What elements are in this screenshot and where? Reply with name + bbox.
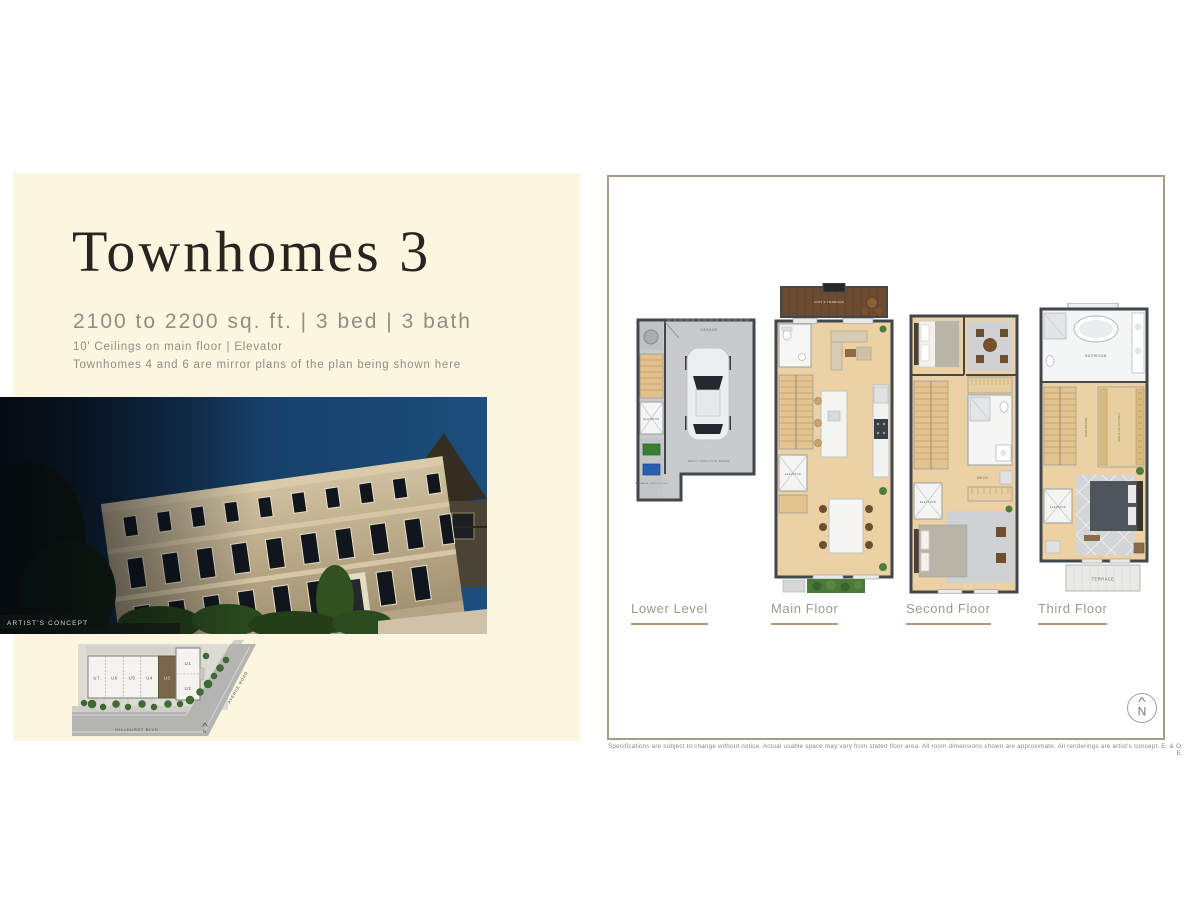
bathroom <box>968 395 1012 465</box>
elevator-label: ELEVATOR <box>1050 506 1066 509</box>
garbage-label: GARBAGE / RECYCLING <box>635 482 668 485</box>
garage-label: GARAGE <box>700 328 718 332</box>
floorplan-main-floor: UNIT 3 TERRACE <box>773 283 895 595</box>
tab-third-floor[interactable]: Third Floor <box>1038 601 1107 625</box>
site-unit-label: U4 <box>146 676 153 681</box>
elevator: ELEVATOR <box>779 455 807 491</box>
mech-label: MECH. <box>977 476 989 480</box>
unit-detail-line2: Townhomes 4 and 6 are mirror plans of th… <box>73 359 461 371</box>
svg-text:WARDROBE: WARDROBE <box>1084 417 1088 437</box>
bedroom-2 <box>914 321 959 367</box>
site-unit-label: U6 <box>111 676 118 681</box>
north-compass-icon: N <box>1123 689 1161 727</box>
shadow-overlay <box>0 397 255 634</box>
powder-room <box>779 324 811 367</box>
upper-terrace: TERRACE <box>1066 565 1140 591</box>
terrace-label: TERRACE <box>1092 577 1115 582</box>
rear-garden <box>783 579 865 593</box>
floorplan-lower-level: ELEVATOR GARBAGE / RECYCLING GARAGE MULT… <box>635 313 757 507</box>
terrace-label: UNIT 3 TERRACE <box>814 300 844 304</box>
photo-caption-badge: ARTIST'S CONCEPT <box>0 615 108 629</box>
garbage-bin <box>643 464 660 475</box>
stairs <box>640 354 663 398</box>
closet <box>779 495 807 513</box>
svg-text:N: N <box>203 729 207 734</box>
street-label-bottom: HILLHURST BLVD <box>115 727 158 732</box>
tab-main-floor[interactable]: Main Floor <box>771 601 838 625</box>
site-unit-label: U5 <box>129 676 136 681</box>
bathroom-label: BATHROOM <box>1085 354 1106 358</box>
site-unit-label: U7 <box>93 676 100 681</box>
wardrobe-hall: WARDROBE <box>1084 417 1088 437</box>
site-building: U7 U6 U5 U4 U3 U1 U2 <box>88 648 204 700</box>
floorplan-second-floor: MECH. ELEVATOR <box>908 313 1020 595</box>
bathroom: BATHROOM <box>1041 311 1147 383</box>
multi-function-label: MULTI-FUNCTION SPACE <box>688 459 730 463</box>
page-title: Townhomes 3 <box>72 218 431 285</box>
walk-in-closet-label: WALK-IN CLOSET <box>1117 412 1121 441</box>
site-unit-label: U2 <box>185 686 192 691</box>
elevator: ELEVATOR <box>640 402 663 434</box>
kitchen-counter <box>873 385 889 477</box>
site-plan: U7 U6 U5 U4 U3 U1 U2 HILLHURST BLVD AVEN… <box>72 640 262 745</box>
elevator-label: ELEVATOR <box>785 473 801 476</box>
closet-strip-2 <box>968 487 1012 501</box>
sitting-area <box>968 321 1012 371</box>
floorplan-third-floor: BATHROOM WARDROBE WALK-IN CLOSET <box>1038 303 1150 595</box>
elevator: ELEVATOR <box>1044 489 1072 523</box>
stairs <box>914 381 948 469</box>
brochure-page: Townhomes 3 2100 to 2200 sq. ft. | 3 bed… <box>0 0 1186 916</box>
compass-north-label: N <box>1138 705 1147 719</box>
elevator: ELEVATOR <box>914 483 942 519</box>
recycling-bin <box>643 444 660 455</box>
walk-in-closet: WALK-IN CLOSET <box>1098 387 1144 467</box>
building-rendering-photo: ARTIST'S CONCEPT <box>0 397 487 634</box>
tab-lower-level[interactable]: Lower Level <box>631 601 708 625</box>
car <box>685 348 731 440</box>
floorplan-panel: ELEVATOR GARBAGE / RECYCLING GARAGE MULT… <box>607 175 1165 740</box>
stairs <box>779 375 813 449</box>
site-unit-label: U1 <box>185 661 192 666</box>
disclaimer-text: Specifications are subject to change wit… <box>603 743 1183 757</box>
unit-detail-line1: 10' Ceilings on main floor | Elevator <box>73 341 283 353</box>
tab-second-floor[interactable]: Second Floor <box>906 601 991 625</box>
elevator-label: ELEVATOR <box>643 418 659 421</box>
site-unit-label-highlighted: U3 <box>164 676 171 681</box>
unit-specs: 2100 to 2200 sq. ft. | 3 bed | 3 bath <box>73 310 472 334</box>
closet-strip <box>968 377 1012 393</box>
front-terrace: UNIT 3 TERRACE <box>781 283 887 317</box>
photo-caption: ARTIST'S CONCEPT <box>7 620 88 627</box>
stairs <box>1044 387 1076 465</box>
elevator-label: ELEVATOR <box>920 501 936 504</box>
bbq-grill <box>823 283 845 292</box>
